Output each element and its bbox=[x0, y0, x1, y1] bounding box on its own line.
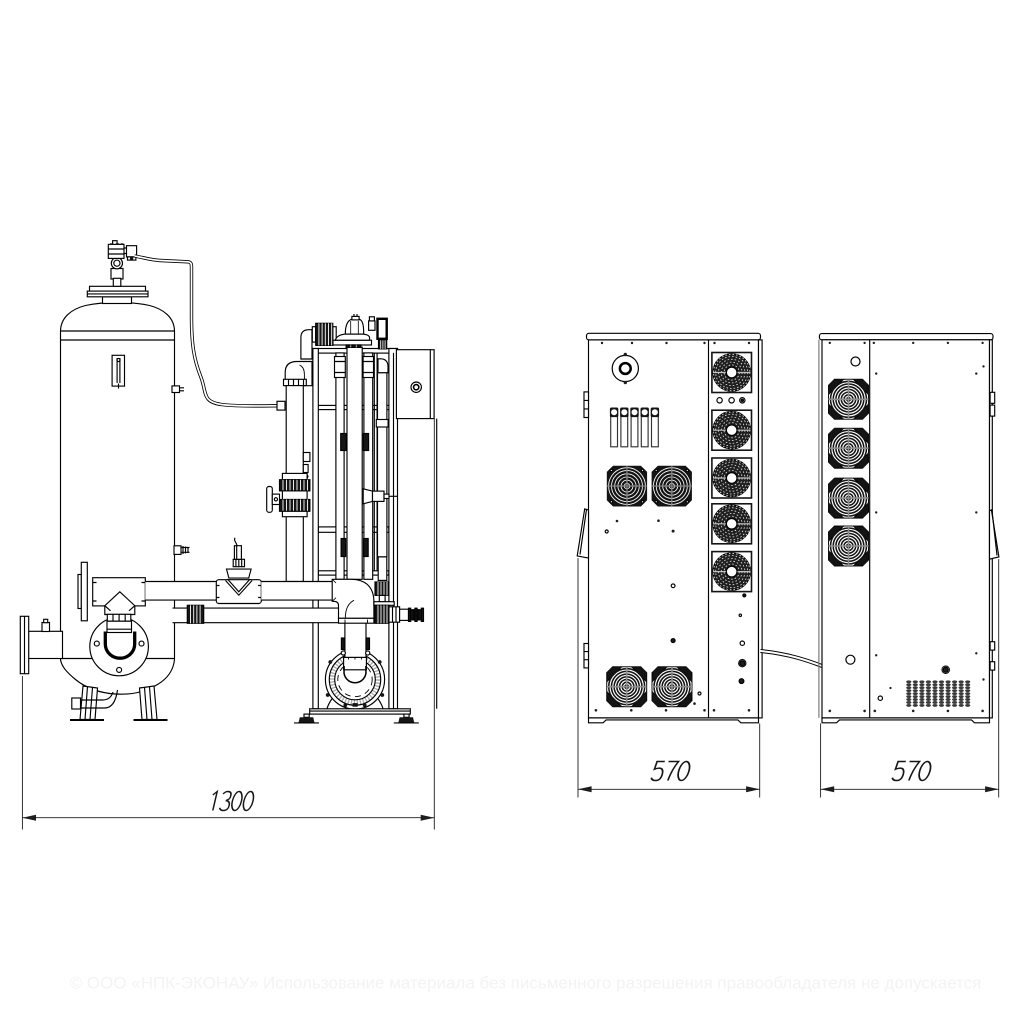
svg-text:© ООО «НПК-ЭКОНАУ» Использован: © ООО «НПК-ЭКОНАУ» Использование материа… bbox=[70, 974, 982, 993]
